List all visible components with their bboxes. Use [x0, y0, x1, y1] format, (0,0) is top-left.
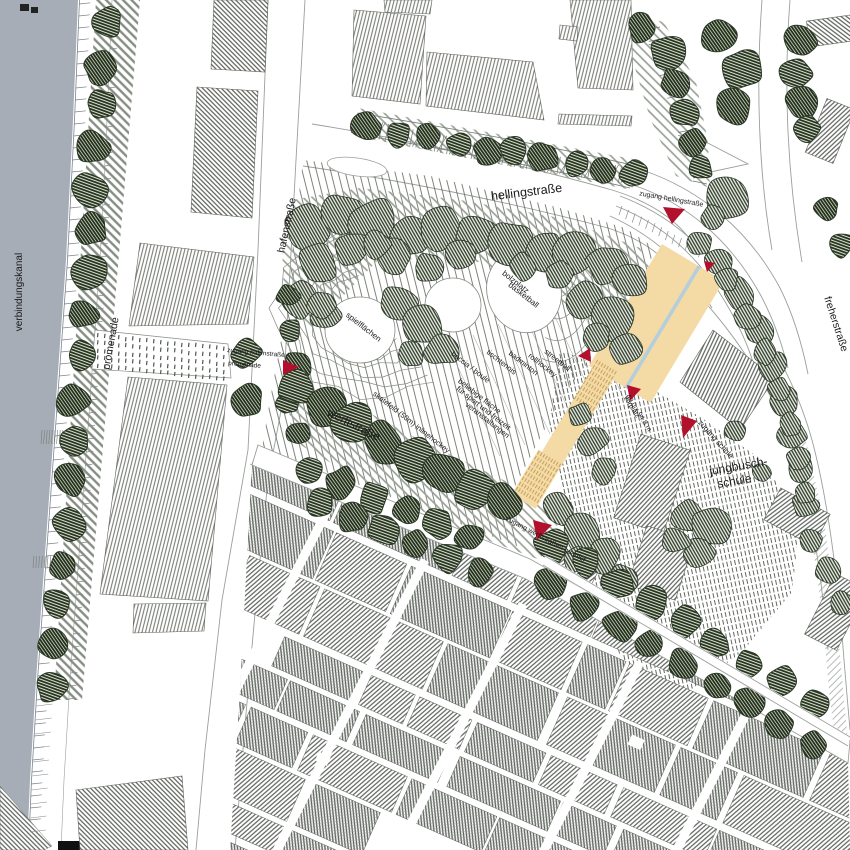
svg-text:verbindungskanal: verbindungskanal: [14, 253, 25, 331]
